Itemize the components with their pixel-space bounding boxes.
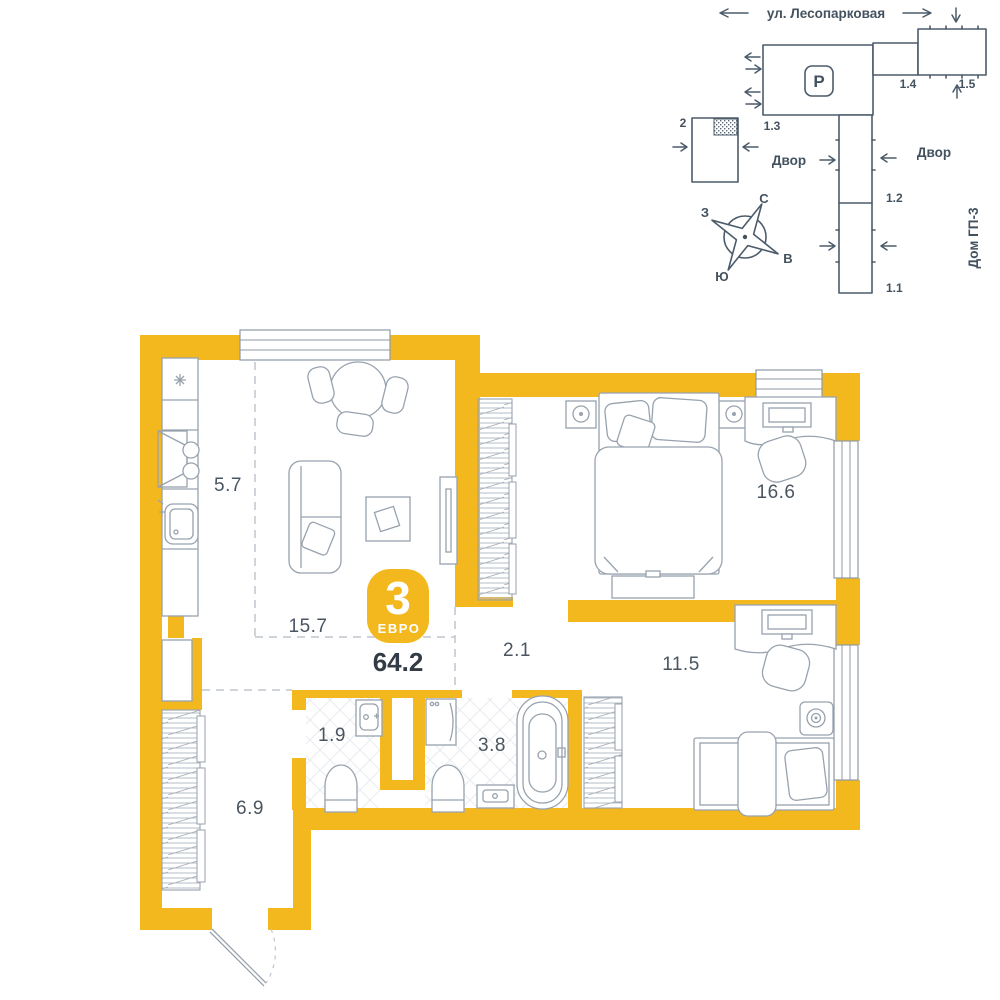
entrance-arrow-icon bbox=[745, 88, 760, 96]
entrance-arrow-icon bbox=[746, 65, 761, 73]
building-label-15: 1.5 bbox=[959, 77, 976, 91]
tv-stand bbox=[612, 571, 694, 598]
neighbor-house-label: Дом ГП-3 bbox=[966, 207, 981, 268]
bed-pillow bbox=[784, 747, 828, 801]
building-14 bbox=[873, 43, 918, 75]
compass-west: З bbox=[701, 205, 709, 220]
entrance-arrow-icon bbox=[881, 242, 896, 250]
bathroom-sink-icon bbox=[477, 785, 514, 808]
entrance-arrow-icon bbox=[673, 143, 687, 151]
room-label-wc: 1.9 bbox=[318, 725, 346, 746]
building-15 bbox=[918, 29, 986, 75]
sofa bbox=[289, 461, 341, 573]
door-swing-arc bbox=[266, 929, 275, 983]
room-label-bedroom: 16.6 bbox=[757, 482, 796, 503]
courtyard-label-right: Двор bbox=[917, 145, 951, 160]
compass-center-dot bbox=[743, 235, 747, 239]
building-label-14: 1.4 bbox=[900, 77, 917, 91]
entrance-arrow-icon bbox=[743, 143, 758, 151]
entrance-door bbox=[210, 929, 275, 986]
street-name: ул. Лесопарковая bbox=[767, 6, 885, 21]
compass-east: В bbox=[783, 251, 792, 266]
room-label-hall: 2.1 bbox=[503, 640, 531, 661]
plan-canvas: ул. Лесопарковая P 1.3 1.4 1.5 2 1.2 bbox=[0, 0, 1000, 1000]
bedroom-side-window bbox=[834, 441, 858, 578]
parking-letter: P bbox=[813, 72, 824, 91]
room-label-bedroom2: 11.5 bbox=[662, 654, 700, 675]
bathtub-icon bbox=[517, 696, 568, 809]
wc-toilet-icon bbox=[325, 765, 357, 812]
badge-room-count: 3 bbox=[385, 572, 411, 624]
dining-chair bbox=[306, 365, 336, 405]
total-area: 64.2 bbox=[373, 647, 424, 677]
room-label-kitchen: 5.7 bbox=[214, 475, 242, 496]
entrance-arrow-icon bbox=[820, 156, 835, 164]
apartment-badge: 3 ЕВРО 64.2 bbox=[367, 569, 429, 677]
door-leaf bbox=[210, 929, 266, 986]
room-label-bathroom: 3.8 bbox=[478, 735, 506, 756]
wc-sink-icon bbox=[356, 700, 382, 736]
monitor-icon bbox=[763, 403, 811, 427]
dining-table bbox=[330, 362, 386, 418]
bed-pillow bbox=[651, 397, 708, 443]
room-label-living: 15.7 bbox=[289, 616, 328, 637]
floorplan-page: ул. Лесопарковая P 1.3 1.4 1.5 2 1.2 bbox=[0, 0, 1000, 1000]
washing-machine-icon bbox=[426, 699, 456, 745]
room-hallway: 6.9 bbox=[162, 710, 264, 890]
living-room-window bbox=[240, 330, 390, 360]
bedroom2-side-window bbox=[834, 645, 858, 780]
room-bedroom2: 11.5 bbox=[584, 605, 836, 816]
compass-north: С bbox=[759, 191, 769, 206]
bedroom-window bbox=[756, 370, 822, 398]
street-arrow-right-icon bbox=[903, 9, 931, 17]
entrance-arrow-icon bbox=[820, 242, 835, 250]
building-label-11: 1.1 bbox=[886, 281, 903, 295]
entrance-arrow-icon bbox=[746, 100, 761, 108]
bedroom-wardrobe bbox=[478, 399, 512, 600]
room-kitchen: 5.7 bbox=[158, 358, 242, 616]
site-plan: ул. Лесопарковая P 1.3 1.4 1.5 2 1.2 bbox=[673, 6, 986, 295]
tv-cabinet bbox=[440, 477, 457, 564]
room-bedroom: 16.6 bbox=[478, 393, 836, 600]
floor-plan: 5.7 15.7 bbox=[140, 330, 860, 986]
compass-rose: С Ю З В bbox=[701, 191, 793, 284]
desk-bedroom bbox=[745, 397, 836, 486]
nightstand-left bbox=[566, 401, 596, 428]
bathroom-toilet-icon bbox=[432, 765, 464, 812]
street-arrow-left-icon bbox=[720, 9, 748, 17]
hallway-wardrobe bbox=[162, 710, 200, 890]
compass-south: Ю bbox=[715, 269, 728, 284]
bed-blanket bbox=[738, 732, 776, 816]
double-bed bbox=[595, 393, 722, 574]
desk-bedroom2 bbox=[735, 605, 836, 694]
wall-sconce bbox=[800, 702, 833, 735]
building-11-12 bbox=[839, 115, 872, 293]
courtyard-label-left: Двор bbox=[772, 153, 806, 168]
entrance-arrow-icon bbox=[881, 154, 896, 162]
coffee-table bbox=[366, 497, 410, 541]
hallway-niche bbox=[162, 640, 192, 701]
badge-type: ЕВРО bbox=[378, 621, 421, 636]
building-label-13: 1.3 bbox=[764, 119, 781, 133]
building-2-highlight bbox=[714, 119, 737, 135]
building-label-12: 1.2 bbox=[886, 191, 903, 205]
bed-blanket bbox=[595, 447, 722, 574]
entrance-arrow-icon bbox=[745, 53, 760, 61]
monitor-icon bbox=[762, 610, 812, 634]
room-label-hallway: 6.9 bbox=[236, 798, 264, 819]
building-label-2: 2 bbox=[680, 116, 687, 130]
single-bed bbox=[694, 732, 834, 816]
arrow-down-icon bbox=[952, 8, 960, 22]
